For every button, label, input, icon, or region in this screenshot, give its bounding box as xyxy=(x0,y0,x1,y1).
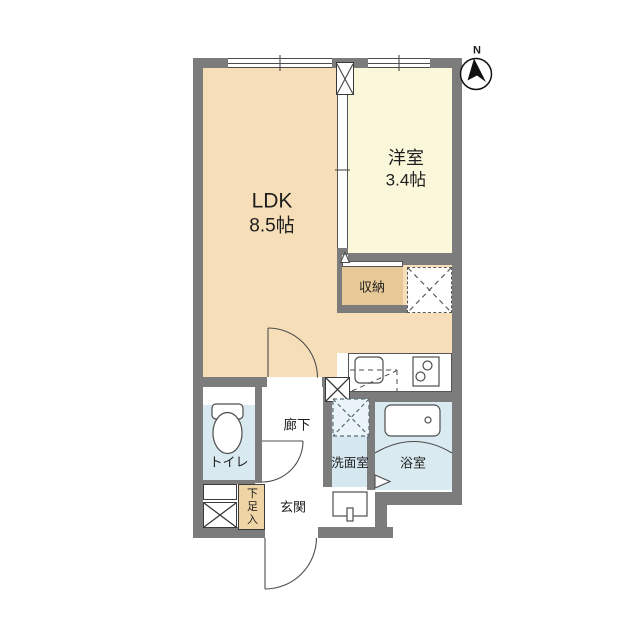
wall-partition-lower xyxy=(337,248,348,255)
room-size-ldk: 8.5帖 xyxy=(249,217,294,236)
room-label-ldk: LDK xyxy=(252,191,293,212)
closet-sliding-door xyxy=(342,261,403,267)
room-label-bathroom: 浴室 xyxy=(400,457,426,470)
washbasin-area-floor xyxy=(332,487,375,527)
window-mullion xyxy=(368,63,430,64)
wall-right xyxy=(452,58,462,505)
meter-box-icon xyxy=(203,502,237,528)
wall-entrance-right xyxy=(323,387,332,487)
wall-washroom-top xyxy=(332,392,452,402)
wall-toilet-right xyxy=(255,387,262,483)
room-label-shoebox: 下足入 xyxy=(246,488,257,527)
kitchen-counter xyxy=(348,353,452,392)
wall-left xyxy=(193,58,203,538)
room-toilet-upper xyxy=(203,387,255,405)
wall-hall-top-left xyxy=(203,377,267,387)
sliding-door-icon xyxy=(337,95,348,248)
room-label-western: 洋室 xyxy=(388,149,424,167)
room-label-washroom: 洗面室 xyxy=(331,457,369,470)
wall-bath-bottom xyxy=(375,492,462,505)
floor-plan: LDK 8.5帖 洋室 3.4帖 収納 トイレ 廊下 洗面室 浴室 玄関 下足入… xyxy=(0,0,640,640)
wall-washroom-bath xyxy=(367,402,375,490)
column-hatch xyxy=(336,62,354,95)
window-icon xyxy=(228,58,332,68)
wall-step xyxy=(375,492,387,538)
north-arrow-icon xyxy=(461,59,492,90)
wall-closet-bottom xyxy=(337,305,407,313)
fridge-space-icon xyxy=(407,267,452,313)
utility-box xyxy=(203,484,237,500)
window-icon xyxy=(368,58,430,68)
compass-north-label: N xyxy=(473,46,481,57)
pipe-space-icon xyxy=(325,377,350,402)
room-label-toilet: トイレ xyxy=(209,456,248,469)
room-size-western: 3.4帖 xyxy=(386,172,427,189)
window-mullion xyxy=(228,63,332,64)
room-label-closet: 収納 xyxy=(359,281,385,294)
room-bathroom-floor xyxy=(375,402,452,490)
room-washroom-floor xyxy=(332,402,367,490)
room-label-hallway: 廊下 xyxy=(284,418,311,432)
room-label-entrance: 玄関 xyxy=(280,501,306,514)
